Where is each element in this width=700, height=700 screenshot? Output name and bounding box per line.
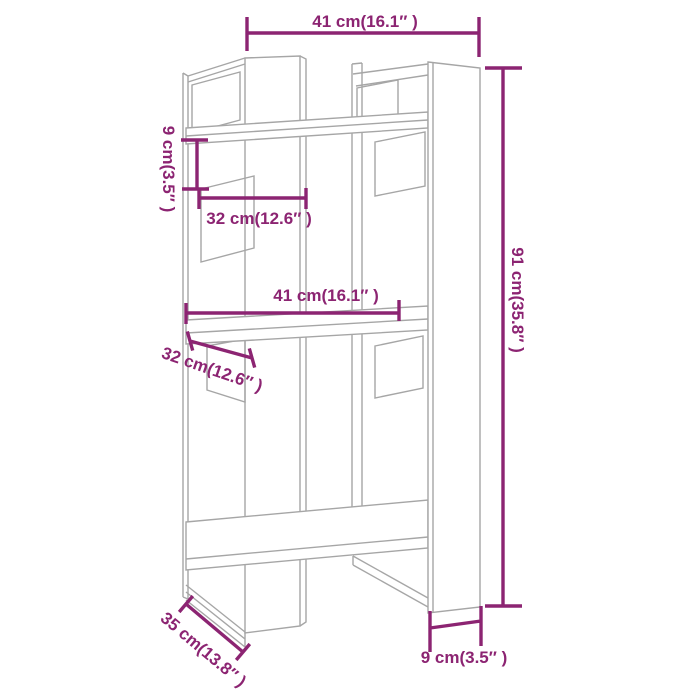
right-side-panel xyxy=(428,62,480,613)
dim-label-right-height: 91 cm(35.8″ ) xyxy=(507,247,527,352)
dim-label-upper-left-depth: 32 cm(12.6″ ) xyxy=(206,209,311,229)
dim-label-bottom-right-width: 9 cm(3.5″ ) xyxy=(421,648,508,668)
dim-label-upper-left-height: 9 cm(3.5″ ) xyxy=(158,126,178,213)
dim-label-middle-width: 41 cm(16.1″ ) xyxy=(273,286,378,306)
dim-label-top-width: 41 cm(16.1″ ) xyxy=(312,12,417,32)
diagram-canvas: 41 cm(16.1″ ) 9 cm(3.5″ ) 32 cm(12.6″ ) … xyxy=(0,0,700,700)
furniture-wireframe-svg xyxy=(0,0,700,700)
shelves xyxy=(186,112,428,570)
